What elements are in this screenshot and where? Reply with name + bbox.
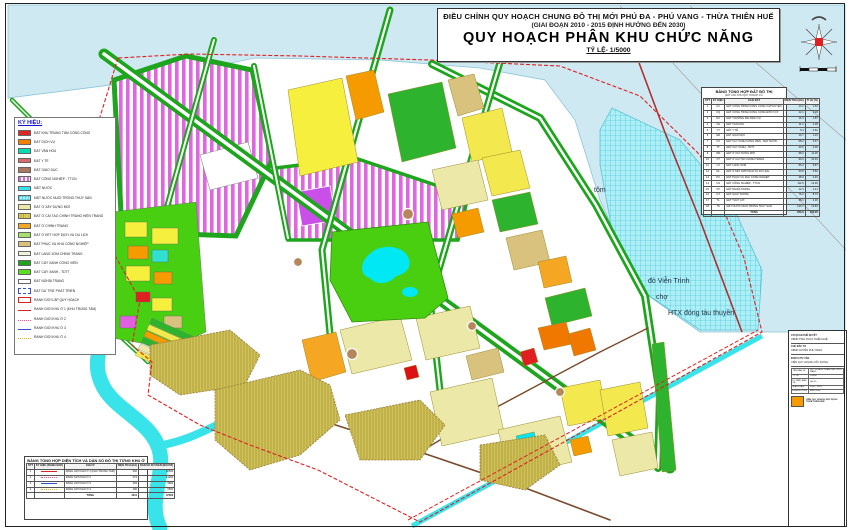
drawing-info-grid: TÊN BẢN VẼQUY HOẠCH PHÂN KHU CHỨC NĂNGTỶ… — [791, 368, 844, 394]
legend-item-label: ĐẤT LÀNG XÓM CHỈNH TRANG — [34, 252, 83, 256]
legend-item: ĐẤT VĂN HÓA — [18, 147, 113, 156]
legend-item: ĐẤT DỊCH VỤ — [18, 137, 113, 146]
pond — [402, 287, 418, 297]
plan-title-line1: ĐIỀU CHỈNH QUY HOẠCH CHUNG ĐÔ THỊ MỚI PH… — [438, 12, 779, 21]
north-arrow — [812, 17, 826, 20]
table-cell: TỔNG — [64, 493, 116, 499]
legend-item: ĐẤT NGHĨA TRANG — [18, 277, 113, 286]
legend-item-label: ĐẤT Ở CHỈNH TRANG — [34, 224, 68, 228]
legend: KÝ HIỆU: ĐẤT KHU TRUNG TÂM CÔNG CỘNGĐẤT … — [14, 117, 116, 355]
land-use-grid: STTKÝ HIỆULOẠI ĐẤTDIỆN TÍCH (HA)TỈ LỆ (%… — [703, 98, 820, 217]
label-market: chợ — [656, 294, 668, 301]
table-cell — [711, 210, 725, 216]
sheet-section-value: UBND HUYỆN PHÚ VANG — [791, 349, 844, 352]
legend-item-label: ĐẤT DỰ TRỮ PHÁT TRIỂN — [34, 289, 75, 293]
legend-item: ĐẤT Y TẾ — [18, 156, 113, 165]
sheet-section: CƠ QUAN PHÊ DUYỆTUBND TỈNH THỪA THIÊN HU… — [791, 332, 844, 344]
legend-swatch — [18, 310, 31, 311]
legend-item: MẶT NƯỚC — [18, 184, 113, 193]
legend-item-label: RANH GIỚI KHU Ở 1 (KHU TRUNG TÂM) — [34, 307, 96, 311]
legend-swatch — [18, 167, 31, 173]
sheet-section-value: UBND TỈNH THỪA THIÊN HUẾ — [791, 338, 844, 341]
sheet-footer: VIỆN QUY HOẠCH XÂY DỰNG THỪA THIÊN HUẾ — [791, 396, 844, 407]
legend-item-label: ĐẤT CÂY XANH CÔNG VIÊN — [34, 261, 78, 265]
legend-item-label: ĐẤT CÔNG NGHIỆP - TTCN — [34, 177, 77, 181]
label-shrimp: tôm — [594, 187, 606, 194]
table-cell — [27, 493, 35, 499]
legend-item: ĐẤT CÂY XANH - TDTT — [18, 267, 113, 276]
legend-swatch — [18, 186, 31, 192]
legend-items: ĐẤT KHU TRUNG TÂM CÔNG CỘNGĐẤT DỊCH VỤĐẤ… — [18, 128, 113, 342]
legend-item-label: RANH GIỚI KHU Ở 4 — [34, 335, 66, 339]
legend-swatch — [18, 251, 31, 257]
legend-item: ĐẤT CÔNG NGHIỆP - TTCN — [18, 174, 113, 183]
land-use-table-body: STTKÝ HIỆULOẠI ĐẤTDIỆN TÍCH (HA)TỈ LỆ (%… — [703, 98, 785, 217]
zones-table: BẢNG TỔNG HỢP DIỆN TÍCH VÀ DÂN SỐ ĐÔ THỊ… — [24, 456, 148, 520]
legend-swatch — [18, 213, 31, 219]
table-cell — [34, 493, 64, 499]
legend-item-label: ĐẤT Ở XÂY DỰNG MỚI — [34, 205, 70, 209]
legend-swatch — [18, 195, 31, 201]
zone-boundary-line — [41, 477, 57, 478]
land-use-table: BẢNG TỔNG HỢP ĐẤT ĐÔ THỊ ĐẤT CÁC KHU QUY… — [701, 87, 787, 215]
legend-swatch — [18, 279, 31, 285]
legend-item: ĐẤT LÀNG XÓM CHỈNH TRANG — [18, 249, 113, 258]
org-name: VIỆN QUY HOẠCH XÂY DỰNG THỪA THIÊN HUẾ — [806, 399, 844, 404]
legend-item-label: ĐẤT CÂY XANH - TDTT — [34, 270, 70, 274]
land-use-table-subtitle: ĐẤT CÁC KHU QUY HOẠCH CŨ — [703, 94, 785, 97]
sheet-section-label: ĐƠN VỊ TƯ VẤN — [791, 357, 844, 360]
plan-title-main: QUY HOẠCH PHÂN KHU CHỨC NĂNG — [438, 30, 779, 46]
legend-swatch — [18, 329, 31, 330]
table-cell: ĐẾN 2030 — [809, 389, 844, 393]
sheet-section-label: CHỦ ĐẦU TƯ — [791, 345, 844, 348]
legend-swatch — [18, 288, 31, 294]
table-total-row: TỔNG101137000 — [27, 493, 175, 499]
legend-item: ĐẤT PHỤC VỤ KHU CÔNG NGHIỆP — [18, 240, 113, 249]
table-cell: 37000 — [138, 493, 174, 499]
scale-bar — [800, 66, 836, 72]
legend-item: RANH GIỚI KHU Ở 1 (KHU TRUNG TÂM) — [18, 305, 113, 314]
legend-title: KÝ HIỆU: — [18, 120, 113, 126]
table-cell: 1011 — [116, 493, 138, 499]
legend-item: MẶT NƯỚC NUÔI TRỒNG THỦY SẢN — [18, 193, 113, 202]
legend-swatch — [18, 320, 31, 321]
central-park — [330, 222, 448, 322]
legend-item-label: ĐẤT GIÁO DỤC — [34, 168, 58, 172]
plan-scale: TỶ LỆ- 1/5000 — [438, 47, 779, 54]
compass-rose — [792, 12, 846, 76]
legend-item: ĐẤT Ở KẾT HỢP DỊCH VỤ DU LỊCH — [18, 230, 113, 239]
table-cell: 873.0 — [783, 210, 805, 216]
legend-item-label: RANH GIỚI LẬP QUY HOẠCH — [34, 298, 79, 302]
map-canvas: tôm đò Viễn Trình chợ HTX đóng tàu thuyề… — [0, 0, 850, 530]
legend-item: RANH GIỚI KHU Ở 4 — [18, 333, 113, 342]
legend-item-label: ĐẤT PHỤC VỤ KHU CÔNG NGHIỆP — [34, 242, 89, 246]
legend-item: RANH GIỚI LẬP QUY HOẠCH — [18, 295, 113, 304]
legend-item: ĐẤT Ở CHỈNH TRANG — [18, 221, 113, 230]
label-cooperative: HTX đóng tàu thuyền — [668, 308, 734, 317]
legend-swatch — [18, 223, 31, 229]
legend-item-label: ĐẤT VĂN HÓA — [34, 149, 56, 153]
legend-item-label: ĐẤT DỊCH VỤ — [34, 140, 55, 144]
legend-swatch — [18, 297, 31, 303]
table-cell: TỔNG — [725, 210, 783, 216]
legend-item: ĐẤT DỰ TRỮ PHÁT TRIỂN — [18, 286, 113, 295]
sheet-section-value: VIỆN QUY HOẠCH XÂY DỰNG — [791, 361, 844, 364]
table-cell: 100.00 — [805, 210, 819, 216]
sheet-section-label: CƠ QUAN PHÊ DUYỆT — [791, 334, 844, 337]
legend-item-label: ĐẤT NGHĨA TRANG — [34, 279, 64, 283]
zone-boundary-line — [41, 483, 57, 484]
table-total-row: TỔNG873.0100.00 — [704, 210, 820, 216]
legend-swatch — [18, 130, 31, 136]
legend-swatch — [18, 158, 31, 164]
legend-swatch — [18, 139, 31, 145]
legend-item: ĐẤT Ở CẢI TẠO CHỈNH TRANG HIỆN TRẠNG — [18, 212, 113, 221]
legend-item: ĐẤT CÂY XANH CÔNG VIÊN — [18, 258, 113, 267]
zones-table-body: STTKÝ HIỆU (RANH GIỚI)KHU ỞDIỆN TÍCH (HA… — [26, 463, 146, 499]
sheet-info-block: CƠ QUAN PHÊ DUYỆTUBND TỈNH THỪA THIÊN HU… — [788, 330, 847, 527]
sheet-section: CHỦ ĐẦU TƯUBND HUYỆN PHÚ VANG — [791, 344, 844, 356]
legend-swatch — [18, 232, 31, 238]
legend-swatch — [18, 148, 31, 154]
label-ferry: đò Viễn Trình — [648, 276, 690, 285]
zone-boundary-line — [41, 489, 57, 490]
table-row: ĐỊNH HƯỚNGĐẾN 2030 — [792, 389, 844, 393]
legend-item: ĐẤT KHU TRUNG TÂM CÔNG CỘNG — [18, 128, 113, 137]
table-cell: ĐỊNH HƯỚNG — [792, 389, 809, 393]
legend-item-label: MẶT NƯỚC — [34, 186, 52, 190]
legend-item-label: ĐẤT Ở KẾT HỢP DỊCH VỤ DU LỊCH — [34, 233, 88, 237]
legend-item-label: RANH GIỚI KHU Ở 3 — [34, 326, 66, 330]
legend-swatch — [18, 176, 31, 182]
legend-item-label: RANH GIỚI KHU Ở 2 — [34, 317, 66, 321]
legend-item-label: ĐẤT KHU TRUNG TÂM CÔNG CỘNG — [34, 131, 90, 135]
plan-title-line2: (GIAI ĐOẠN 2010 - 2015 ĐỊNH HƯỚNG ĐẾN 20… — [438, 22, 779, 29]
zone-boundary-line — [41, 471, 57, 472]
legend-swatch — [18, 204, 31, 210]
legend-item: ĐẤT Ở XÂY DỰNG MỚI — [18, 202, 113, 211]
legend-item: RANH GIỚI KHU Ở 2 — [18, 314, 113, 323]
legend-swatch — [18, 269, 31, 275]
legend-swatch — [18, 260, 31, 266]
sheet-section: ĐƠN VỊ TƯ VẤNVIỆN QUY HOẠCH XÂY DỰNG — [791, 355, 844, 367]
legend-item-label: ĐẤT Ở CẢI TẠO CHỈNH TRANG HIỆN TRẠNG — [34, 214, 103, 218]
legend-item-label: ĐẤT Y TẾ — [34, 159, 49, 163]
plan-sheet: tôm đò Viễn Trình chợ HTX đóng tàu thuyề… — [0, 0, 850, 530]
legend-swatch — [18, 338, 31, 339]
zones-table-title: BẢNG TỔNG HỢP DIỆN TÍCH VÀ DÂN SỐ ĐÔ THỊ… — [26, 458, 146, 463]
legend-item: ĐẤT GIÁO DỤC — [18, 165, 113, 174]
legend-item-label: MẶT NƯỚC NUÔI TRỒNG THỦY SẢN — [34, 196, 92, 200]
compass-center — [815, 38, 823, 46]
legend-item: RANH GIỚI KHU Ở 3 — [18, 323, 113, 332]
title-block: ĐIỀU CHỈNH QUY HOẠCH CHUNG ĐÔ THỊ MỚI PH… — [437, 8, 780, 62]
legend-swatch — [18, 241, 31, 247]
zones-grid: STTKÝ HIỆU (RANH GIỚI)KHU ỞDIỆN TÍCH (HA… — [26, 463, 175, 499]
table-cell — [704, 210, 712, 216]
org-logo — [791, 396, 804, 407]
